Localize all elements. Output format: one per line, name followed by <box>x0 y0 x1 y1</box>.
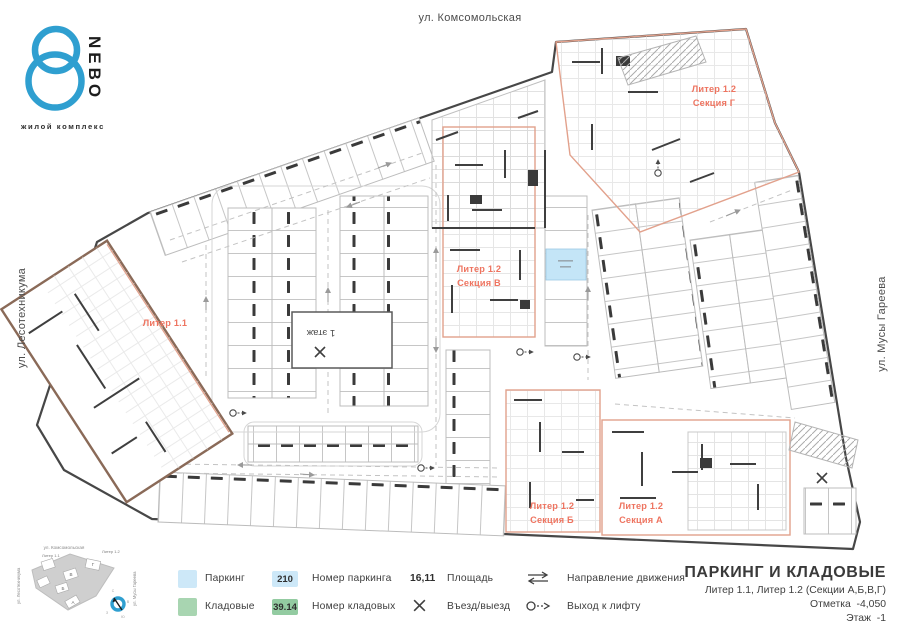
logo-8-icon <box>14 12 134 127</box>
svg-text:Литер 1.2: Литер 1.2 <box>457 264 501 274</box>
logo-tagline: жилой комплекс <box>21 122 105 131</box>
logo-brand: NEBO <box>84 36 104 101</box>
sheet-subtitle: Литер 1.1, Литер 1.2 (Секции А,Б,В,Г) <box>684 585 886 596</box>
storage-swatch <box>178 598 197 616</box>
direction-label: Направление движения <box>567 573 685 584</box>
svg-text:Секция А: Секция А <box>619 515 663 525</box>
svg-text:В: В <box>69 572 72 577</box>
svg-text:Секция Г: Секция Г <box>693 98 736 108</box>
parking-legend-label: Паркинг <box>205 573 245 584</box>
svg-text:Ю: Ю <box>121 615 125 619</box>
entry-exit-label: Въезд/выезд <box>447 601 510 612</box>
floor-plan: 1 этаж Литер 1.1 Литер 1.2 Секция В Лите… <box>0 0 900 560</box>
lift-exit-legend-icon <box>525 599 551 613</box>
minimap-street-top: ул. Комсомольская <box>44 545 85 550</box>
svg-text:Б: Б <box>61 586 64 591</box>
liter-1-1-label: Литер 1.1 <box>143 318 187 328</box>
minimap-liter12: Литер 1.2 <box>102 549 121 554</box>
lift-exit-label: Выход к лифту <box>567 601 641 612</box>
parking-swatch <box>178 570 197 588</box>
page: 1 этаж Литер 1.1 Литер 1.2 Секция В Лите… <box>0 0 900 637</box>
svg-text:С: С <box>112 589 115 593</box>
mini-map: ул. Комсомольская Г В Б А Литер 1.1 Лите… <box>12 540 158 637</box>
svg-text:З: З <box>106 611 108 615</box>
sheet-floor: Этаж -1 <box>684 613 886 624</box>
street-label-left: ул. Лесотехникума <box>16 248 28 388</box>
street-label-right: ул. Мусы Гареева <box>876 254 888 394</box>
area-label: Площадь <box>447 573 493 584</box>
sheet-elevation: Отметка -4,050 <box>684 599 886 610</box>
direction-legend-icon <box>525 570 551 586</box>
first-floor-zone: 1 этаж <box>292 312 392 368</box>
storage-number-label: Номер кладовых <box>312 601 395 612</box>
svg-text:Секция В: Секция В <box>457 278 501 288</box>
area-sample: 16,11 <box>410 573 435 584</box>
logo: NEBO жилой комплекс <box>14 12 134 127</box>
storage-number-sample: 39.14 <box>272 599 298 615</box>
storage-legend-label: Кладовые <box>205 601 255 612</box>
entry-exit-legend-icon <box>412 598 427 613</box>
svg-text:Литер 1.2: Литер 1.2 <box>619 501 663 511</box>
highlighted-parking-stall[interactable] <box>546 249 586 280</box>
svg-text:Секция Б: Секция Б <box>530 515 574 525</box>
street-label-top: ул. Комсомольская <box>380 12 560 24</box>
first-floor-label: 1 этаж <box>306 327 335 338</box>
parking-number-sample: 210 <box>272 571 298 587</box>
minimap-liter11: Литер 1.1 <box>42 553 61 558</box>
title-block: ПАРКИНГ И КЛАДОВЫЕ Литер 1.1, Литер 1.2 … <box>684 564 886 624</box>
svg-text:Литер 1.2: Литер 1.2 <box>530 501 574 511</box>
parking-number-label: Номер паркинга <box>312 573 392 584</box>
sheet-title: ПАРКИНГ И КЛАДОВЫЕ <box>684 564 886 582</box>
svg-text:В: В <box>127 600 130 604</box>
compass-icon: С В Ю З <box>106 589 130 619</box>
svg-text:Литер 1.2: Литер 1.2 <box>692 84 736 94</box>
minimap-street-right: ул. Мусы Гареева <box>132 571 137 606</box>
minimap-street-left: ул. Лесотехникума <box>16 567 21 604</box>
